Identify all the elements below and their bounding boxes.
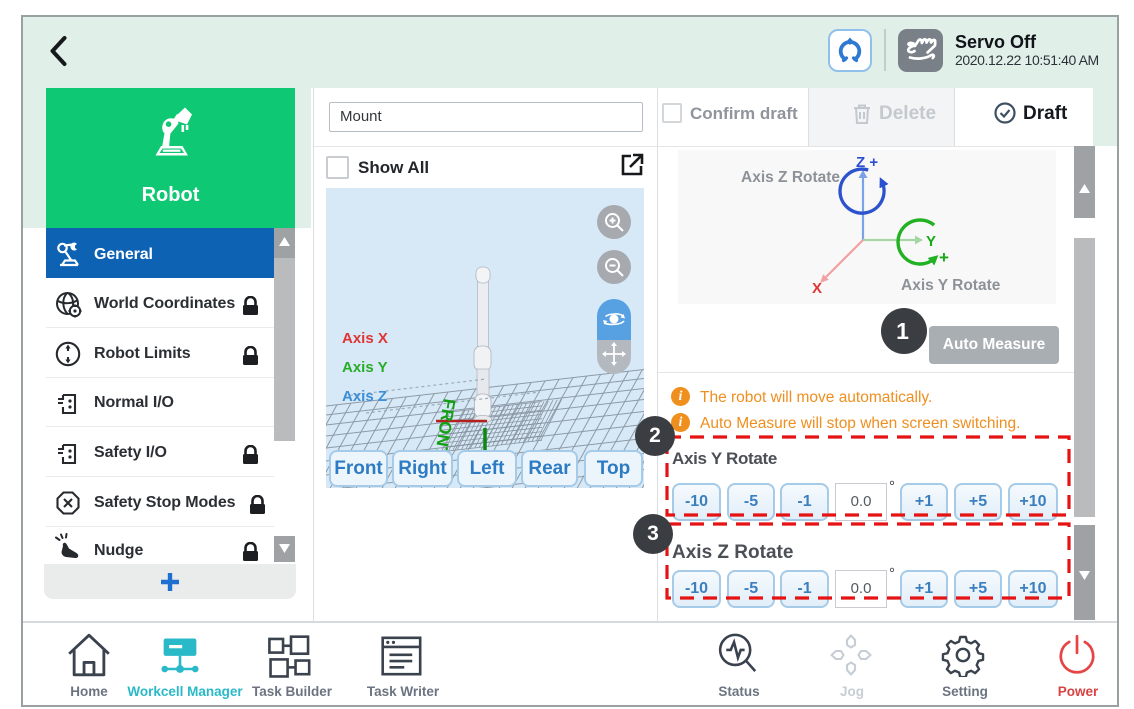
svg-text:Axis Y: Axis Y xyxy=(342,359,388,376)
svg-text:Axis Z Rotate: Axis Z Rotate xyxy=(741,169,840,186)
svg-text:+: + xyxy=(939,248,949,267)
svg-text:Axis Y Rotate: Axis Y Rotate xyxy=(901,277,1001,294)
svg-text:Axis Z: Axis Z xyxy=(342,388,387,405)
svg-text:X: X xyxy=(812,280,822,297)
svg-text:Y: Y xyxy=(926,233,936,250)
svg-text:Z +: Z + xyxy=(856,154,878,171)
svg-text:Axis X: Axis X xyxy=(342,330,388,347)
